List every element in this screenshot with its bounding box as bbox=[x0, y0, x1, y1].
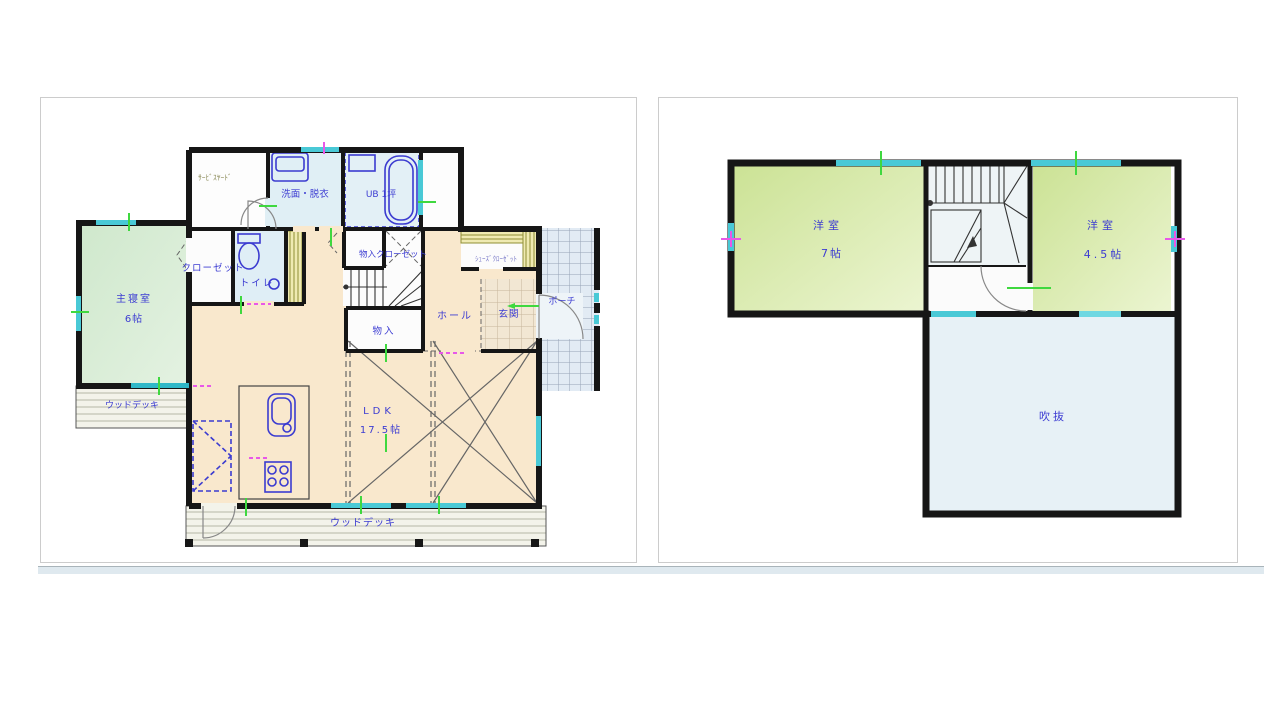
closet-label: クローゼット bbox=[181, 262, 244, 274]
floor1-room-fills bbox=[76, 150, 599, 546]
window-marker bbox=[406, 503, 466, 508]
wood-deck-left-label: ウッドデッキ bbox=[105, 399, 159, 411]
stairs2-area bbox=[926, 163, 1030, 266]
room45-area bbox=[1033, 163, 1171, 314]
window-marker bbox=[418, 160, 423, 215]
storage-closet-area bbox=[344, 229, 384, 268]
hall2-area bbox=[926, 266, 1030, 314]
bath-label: UB 1坪 bbox=[366, 189, 396, 200]
bottom-divider-bar bbox=[38, 566, 1264, 574]
ldk-size-label: 17.5帖 bbox=[360, 423, 402, 436]
shelf-strip bbox=[286, 231, 304, 304]
screenshot-stage: ｻｰﾋﾞｽﾔｰﾄﾞ 洗面・脱衣 UB 1坪 クローゼット トイレ 主寝室 6帖 … bbox=[0, 0, 1280, 720]
room7-label: 洋室 bbox=[813, 218, 843, 232]
hall-label: ホール bbox=[437, 310, 473, 322]
window-marker bbox=[594, 315, 599, 324]
floor2-plan-svg: 洋室 7帖 洋室 4.5帖 吹抜 bbox=[659, 98, 1237, 562]
room7-size-label: 7帖 bbox=[821, 247, 843, 260]
floor1-plan-svg: ｻｰﾋﾞｽﾔｰﾄﾞ 洗面・脱衣 UB 1坪 クローゼット トイレ 主寝室 6帖 … bbox=[41, 98, 636, 562]
master-bedroom-label: 主寝室 bbox=[116, 292, 152, 305]
toilet-label: トイレ bbox=[240, 278, 275, 289]
storage-closet-label: 物入クローゼット bbox=[359, 249, 427, 260]
void-label: 吹抜 bbox=[1039, 409, 1067, 423]
shoes-closet-label: ｼｭｰｽﾞｸﾛｰｾﾞｯﾄ bbox=[475, 255, 517, 263]
storage-label: 物入 bbox=[372, 325, 395, 337]
floor2-panel: 洋室 7帖 洋室 4.5帖 吹抜 bbox=[658, 97, 1238, 563]
room7-area bbox=[731, 163, 926, 314]
window-marker bbox=[594, 293, 599, 302]
window-marker bbox=[301, 147, 339, 152]
washroom-label: 洗面・脱衣 bbox=[281, 188, 329, 200]
room45-size-label: 4.5帖 bbox=[1084, 248, 1125, 261]
wood-deck-bottom-label: ウッドデッキ bbox=[330, 516, 396, 529]
entrance-label: 玄関 bbox=[498, 308, 519, 320]
floor1-panel: ｻｰﾋﾞｽﾔｰﾄﾞ 洗面・脱衣 UB 1坪 クローゼット トイレ 主寝室 6帖 … bbox=[40, 97, 637, 563]
ldk-label: LDK bbox=[363, 406, 395, 417]
service-yard-label: ｻｰﾋﾞｽﾔｰﾄﾞ bbox=[198, 173, 232, 182]
window-marker bbox=[536, 416, 541, 466]
window-marker bbox=[931, 311, 976, 317]
porch-label: ポーチ bbox=[548, 296, 575, 307]
window-marker bbox=[1079, 311, 1121, 317]
window-marker bbox=[836, 160, 921, 166]
master-bedroom-size: 6帖 bbox=[125, 312, 143, 325]
floor2-room-fills bbox=[731, 163, 1178, 514]
room45-label: 洋室 bbox=[1087, 218, 1117, 232]
window-marker bbox=[76, 296, 81, 331]
